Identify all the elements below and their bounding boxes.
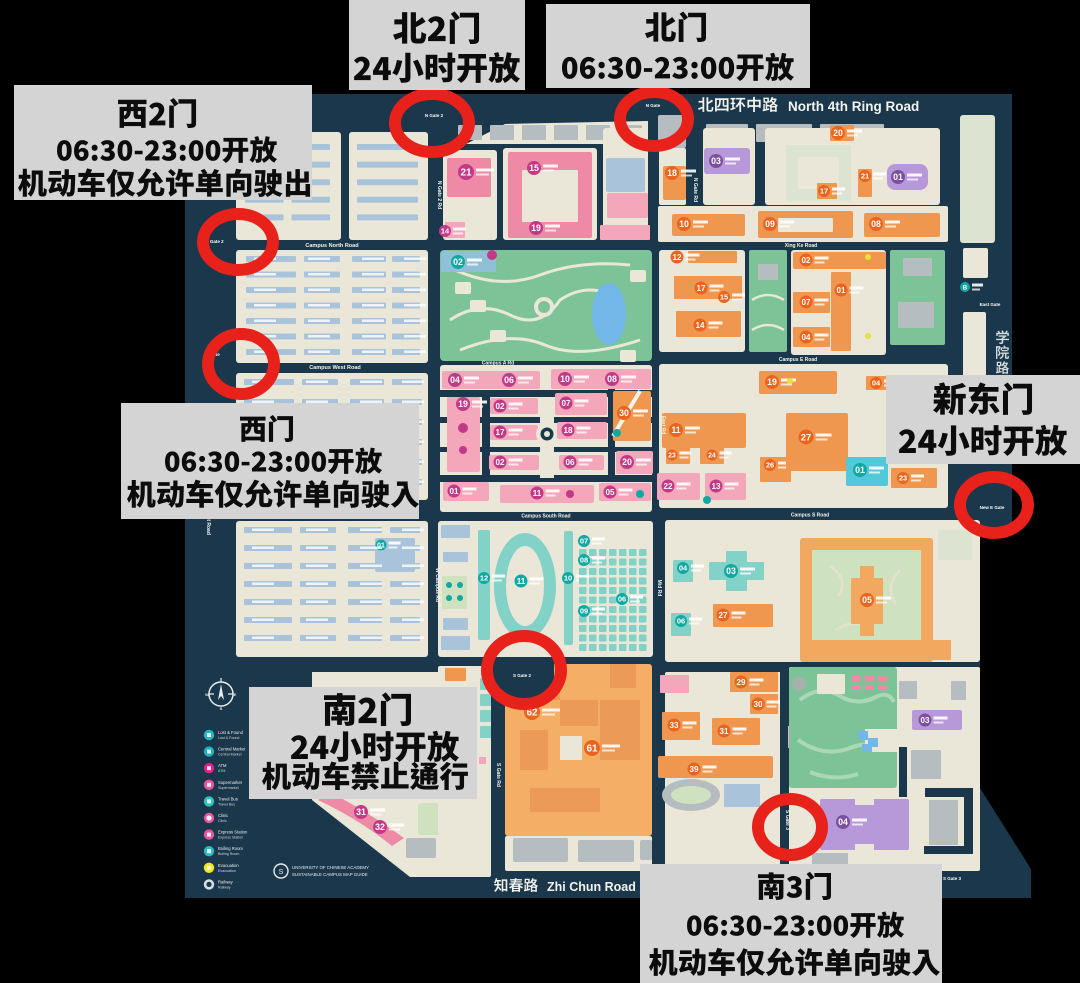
svg-text:01: 01 — [449, 487, 459, 496]
svg-text:61: 61 — [586, 744, 598, 755]
svg-text:N Gate: N Gate — [646, 103, 661, 108]
svg-text:20: 20 — [833, 128, 843, 138]
svg-text:Clinic: Clinic — [218, 813, 228, 818]
svg-text:02: 02 — [495, 458, 505, 467]
svg-text:11: 11 — [671, 425, 680, 435]
svg-text:S Gate 2: S Gate 2 — [513, 673, 532, 678]
svg-text:07: 07 — [561, 399, 571, 408]
svg-text:07: 07 — [801, 298, 811, 307]
svg-text:21: 21 — [460, 168, 472, 179]
svg-text:Xing Ke Road: Xing Ke Road — [785, 243, 818, 249]
svg-text:Zhi Chun Road: Zhi Chun Road — [547, 880, 636, 894]
svg-text:23: 23 — [668, 452, 676, 459]
svg-text:21: 21 — [861, 172, 869, 181]
svg-text:03: 03 — [726, 566, 736, 576]
svg-text:Express Station: Express Station — [218, 830, 248, 835]
svg-text:Travel Bus: Travel Bus — [218, 802, 235, 806]
svg-text:32: 32 — [375, 822, 385, 832]
svg-text:22: 22 — [663, 482, 673, 491]
svg-text:Lost & Found: Lost & Found — [218, 730, 244, 735]
svg-text:26: 26 — [766, 461, 774, 470]
svg-text:S Gate 3: S Gate 3 — [784, 810, 790, 830]
svg-text:S Gate 3: S Gate 3 — [943, 876, 962, 881]
svg-text:01: 01 — [836, 286, 846, 295]
svg-text:17: 17 — [820, 187, 828, 196]
svg-text:39: 39 — [689, 765, 699, 774]
svg-text:08: 08 — [871, 219, 881, 229]
svg-text:03: 03 — [711, 156, 721, 166]
svg-text:Supermarket: Supermarket — [218, 786, 239, 790]
svg-text:01: 01 — [855, 465, 865, 475]
svg-text:11: 11 — [517, 577, 526, 586]
svg-text:02: 02 — [453, 257, 463, 267]
svg-text:05: 05 — [862, 595, 872, 605]
svg-text:N Gate 2 Rd: N Gate 2 Rd — [436, 181, 442, 209]
svg-text:27: 27 — [801, 431, 811, 442]
svg-text:08: 08 — [607, 374, 617, 384]
svg-text:14: 14 — [441, 227, 450, 236]
svg-text:N Gate 2: N Gate 2 — [425, 113, 444, 118]
svg-text:08: 08 — [580, 556, 588, 565]
svg-text:Campus S Road: Campus S Road — [791, 513, 829, 519]
svg-text:17: 17 — [696, 284, 706, 293]
svg-text:24: 24 — [708, 452, 716, 459]
svg-text:31: 31 — [719, 727, 729, 736]
svg-text:30: 30 — [753, 700, 763, 709]
svg-text:Travel Bus: Travel Bus — [218, 796, 238, 801]
svg-text:15: 15 — [720, 293, 728, 302]
svg-text:B: B — [963, 284, 968, 291]
svg-text:19: 19 — [767, 377, 777, 387]
svg-text:04: 04 — [838, 817, 848, 827]
svg-text:East Rd: East Rd — [660, 416, 666, 435]
svg-text:12: 12 — [480, 574, 488, 583]
svg-text:01: 01 — [893, 172, 903, 182]
svg-text:W Campus Rd: W Campus Rd — [434, 568, 440, 602]
svg-text:N Gate Rd: N Gate Rd — [692, 178, 698, 202]
svg-text:07: 07 — [580, 537, 588, 546]
svg-text:04: 04 — [450, 375, 460, 385]
svg-text:17: 17 — [495, 428, 505, 437]
svg-text:11: 11 — [533, 489, 542, 498]
svg-text:18: 18 — [563, 426, 573, 435]
svg-text:Boiling Room: Boiling Room — [218, 852, 239, 856]
svg-text:Campus South Road: Campus South Road — [521, 514, 570, 520]
svg-text:27: 27 — [718, 611, 728, 620]
svg-text:Central Market: Central Market — [218, 747, 246, 752]
svg-text:04: 04 — [872, 379, 881, 388]
svg-text:30: 30 — [619, 408, 629, 418]
svg-text:10: 10 — [564, 574, 572, 583]
svg-text:23: 23 — [899, 474, 907, 483]
svg-text:20: 20 — [622, 457, 632, 467]
svg-text:02: 02 — [801, 256, 811, 265]
svg-text:North 4th Ring Road: North 4th Ring Road — [788, 99, 919, 114]
svg-text:06: 06 — [677, 617, 685, 626]
svg-text:14: 14 — [695, 321, 705, 330]
svg-text:Clinic: Clinic — [218, 819, 227, 823]
svg-text:02: 02 — [495, 402, 505, 411]
svg-text:19: 19 — [531, 223, 541, 233]
svg-text:Evacuation: Evacuation — [218, 863, 239, 868]
svg-text:09: 09 — [580, 607, 588, 616]
svg-text:04: 04 — [801, 333, 811, 342]
svg-text:Evacuation: Evacuation — [218, 869, 236, 873]
svg-text:ATM: ATM — [218, 763, 227, 768]
svg-text:31: 31 — [356, 807, 366, 817]
svg-text:New E Gate: New E Gate — [980, 505, 1005, 510]
svg-text:ATM: ATM — [218, 769, 225, 773]
svg-text:S Gate Rd: S Gate Rd — [495, 763, 501, 787]
svg-text:Central Market: Central Market — [218, 753, 242, 757]
svg-text:06: 06 — [565, 458, 575, 467]
svg-text:E: E — [234, 692, 237, 697]
svg-text:SUSTAINABLE CAMPUS MAP GUIDE: SUSTAINABLE CAMPUS MAP GUIDE — [292, 872, 368, 877]
svg-text:S: S — [220, 706, 223, 711]
svg-text:Mid Rd: Mid Rd — [656, 580, 662, 597]
svg-text:09: 09 — [765, 219, 775, 229]
svg-text:Campus North Road: Campus North Road — [305, 243, 358, 249]
svg-text:W: W — [205, 692, 209, 697]
svg-text:10: 10 — [560, 374, 570, 384]
svg-text:Campus A Rd: Campus A Rd — [482, 361, 514, 367]
svg-text:Boiling Room: Boiling Room — [218, 846, 243, 851]
svg-text:33: 33 — [669, 721, 679, 730]
svg-text:29: 29 — [736, 678, 746, 687]
svg-text:10: 10 — [679, 219, 689, 229]
svg-text:06: 06 — [504, 375, 514, 385]
svg-text:Railway: Railway — [218, 879, 234, 884]
svg-text:15: 15 — [529, 163, 539, 173]
svg-text:Railway: Railway — [218, 885, 231, 889]
svg-text:Campus West Road: Campus West Road — [309, 365, 361, 371]
svg-text:Campus E Road: Campus E Road — [779, 357, 817, 363]
svg-text:Lost & Found: Lost & Found — [218, 736, 239, 740]
svg-text:13: 13 — [711, 482, 721, 491]
svg-text:05: 05 — [605, 488, 615, 497]
svg-text:03: 03 — [920, 716, 930, 725]
svg-text:Supermarket: Supermarket — [218, 780, 243, 785]
svg-text:06: 06 — [618, 595, 626, 604]
svg-text:18: 18 — [667, 168, 677, 178]
svg-text:UNIVERSITY OF CHINESE ACADEMY: UNIVERSITY OF CHINESE ACADEMY — [292, 865, 369, 870]
svg-text:19: 19 — [458, 399, 468, 409]
svg-text:S: S — [279, 869, 284, 876]
svg-text:12: 12 — [672, 253, 682, 262]
svg-text:04: 04 — [679, 564, 688, 573]
svg-text:Express Station: Express Station — [218, 836, 243, 840]
svg-text:East Gate: East Gate — [980, 302, 1001, 307]
